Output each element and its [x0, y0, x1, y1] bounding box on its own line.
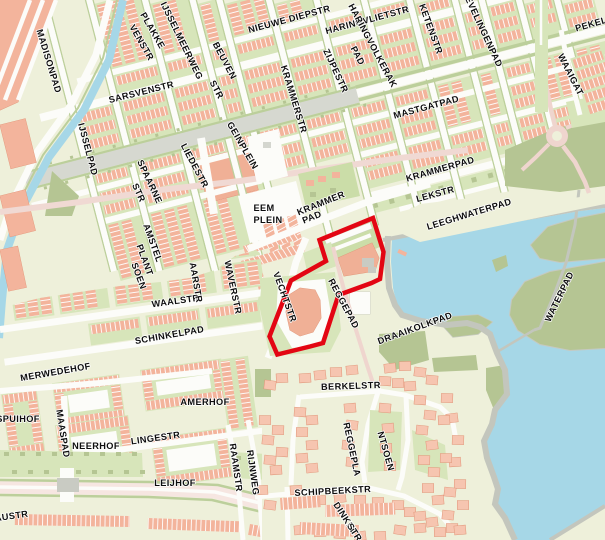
svg-text:AMERHOF: AMERHOF	[180, 397, 229, 407]
svg-text:BERKELSTR: BERKELSTR	[321, 380, 381, 392]
svg-text:PLEIN: PLEIN	[253, 215, 282, 225]
svg-text:SPUIHOF: SPUIHOF	[0, 414, 40, 424]
svg-text:NEERHOF: NEERHOF	[72, 441, 120, 451]
svg-text:EEM: EEM	[253, 203, 274, 213]
svg-text:LEIJHOF: LEIJHOF	[154, 478, 196, 488]
